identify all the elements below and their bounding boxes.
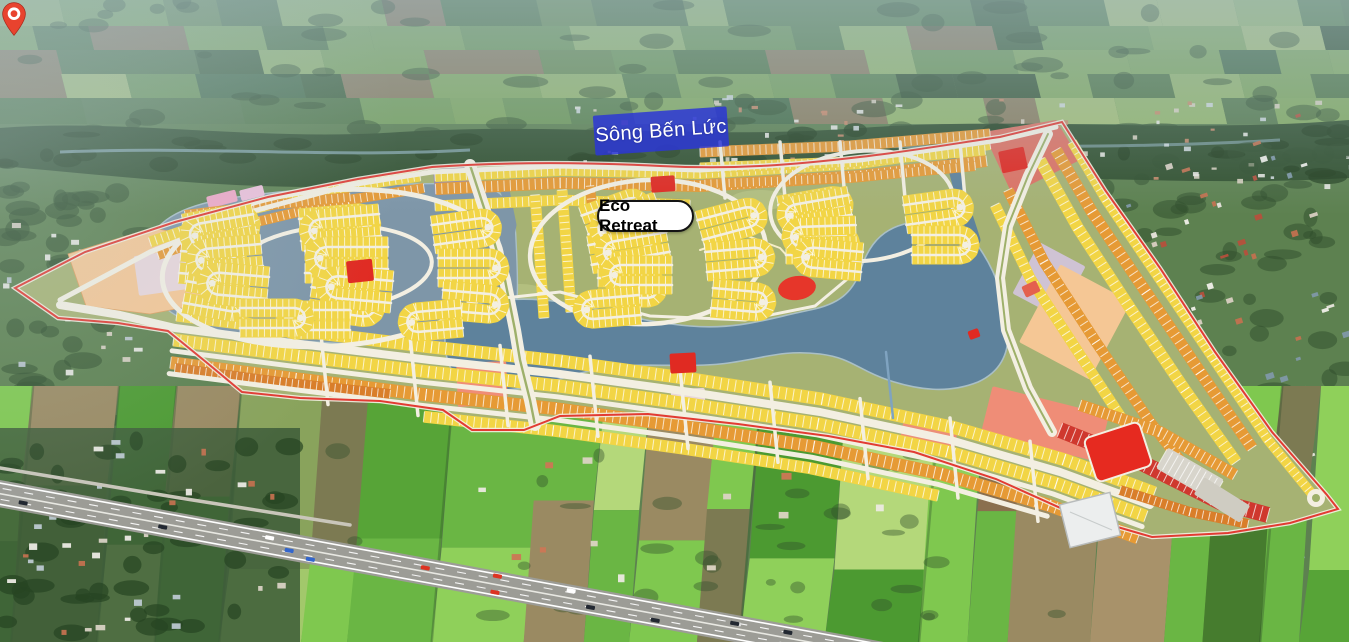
river-label-text: Sông Bến Lức xyxy=(595,115,728,147)
location-pin-icon[interactable] xyxy=(0,0,28,38)
map-canvas xyxy=(0,0,1349,642)
project-label-text: Eco Retreat xyxy=(599,196,692,236)
aerial-map: Sông Bến Lức Eco Retreat xyxy=(0,0,1349,642)
project-label-pill[interactable]: Eco Retreat xyxy=(597,200,694,232)
